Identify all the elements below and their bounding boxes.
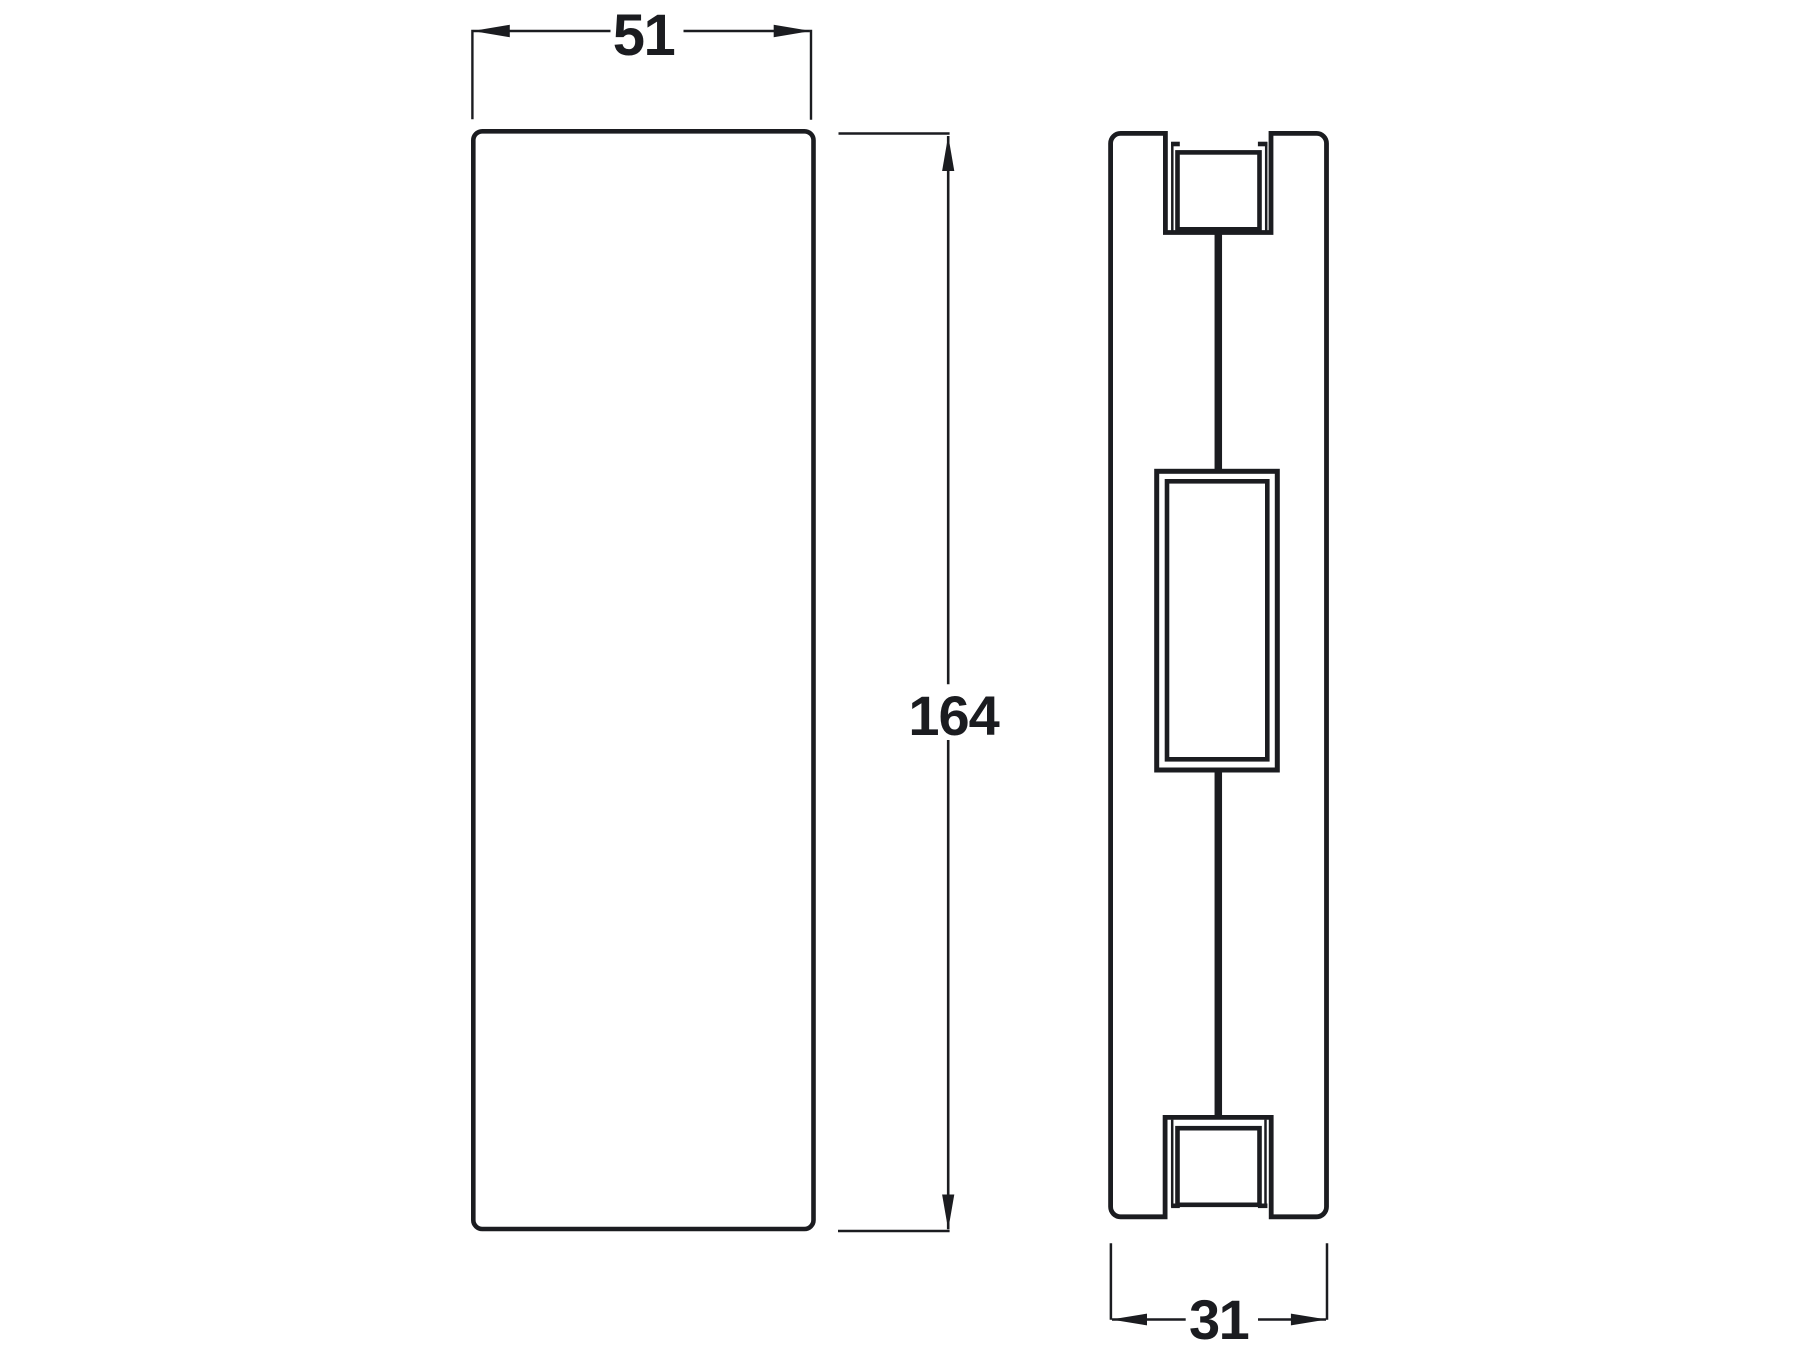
- svg-text:31: 31: [1189, 1288, 1249, 1350]
- svg-text:51: 51: [613, 3, 675, 68]
- svg-text:164: 164: [908, 684, 999, 747]
